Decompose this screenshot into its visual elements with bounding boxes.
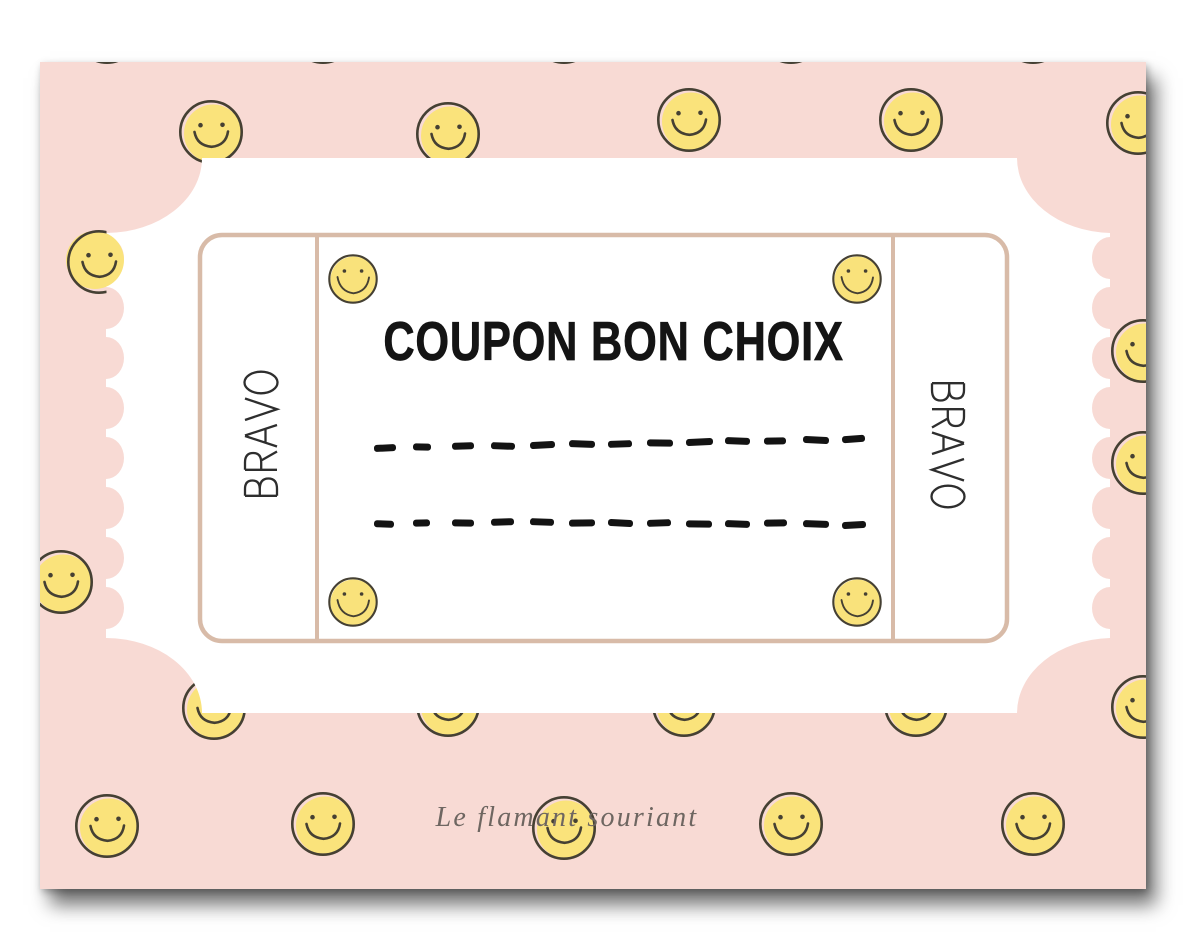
svg-text:Le flamant souriant: Le flamant souriant: [435, 802, 699, 833]
svg-text:COUPON BON CHOIX: COUPON BON CHOIX: [383, 311, 843, 372]
